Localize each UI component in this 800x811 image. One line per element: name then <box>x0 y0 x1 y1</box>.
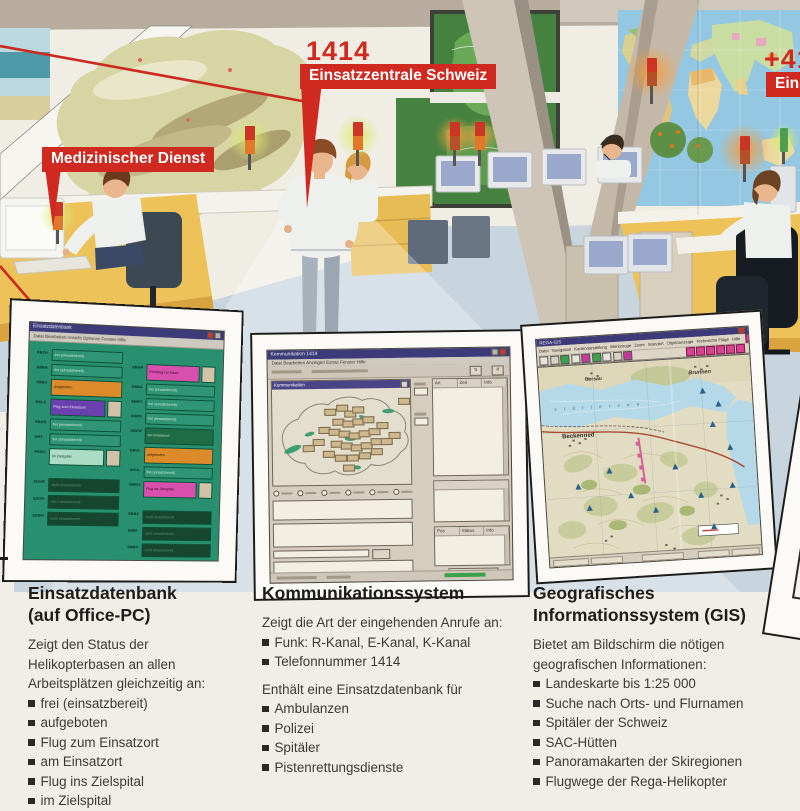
gis-menu-item: Standort <box>648 341 664 347</box>
db-status-board: EBZHfrei (einsatzbereit)EBBAfrei (einsat… <box>23 341 224 562</box>
comm-radio-option <box>345 489 364 495</box>
text-line: Bietet am Bildschirm die nötigen <box>533 635 793 655</box>
comm-field <box>414 387 428 395</box>
db-base-row: EBBGfrei (einsatzbereit) <box>131 412 215 426</box>
section-title: GeografischesInformationssystem (GIS) <box>533 582 793 626</box>
db-status-box: nicht einsatzbereit <box>47 512 119 527</box>
bullet-item: Panoramakarten der Skiregionen <box>533 752 793 772</box>
radio-channel-label <box>362 416 374 423</box>
bullet-text: Ambulanzen <box>275 699 349 719</box>
bullet-square-icon <box>28 798 35 805</box>
database-app-window: Einsatzdatenbank Datei Bearbeiten Ansich… <box>22 321 224 561</box>
db-status-box: frei (einsatzbereit) <box>50 418 122 432</box>
db-status-box: aufgeboten <box>144 447 213 465</box>
db-base-row: EBBAfrei (einsatzbereit) <box>132 383 216 398</box>
section-bullets: frei (einsatzbereit)aufgebotenFlug zum E… <box>28 694 254 811</box>
section-gis: GeografischesInformationssystem (GIS) Bi… <box>533 582 793 791</box>
comm-radio-option <box>369 489 388 495</box>
db-status-box: aufgeboten <box>51 379 123 398</box>
section-bullets: Funk: R-Kanal, E-Kanal, K-KanalTelefonnu… <box>262 633 520 672</box>
radio-channel-label <box>368 428 380 435</box>
db-base-code: EBBA <box>132 383 147 395</box>
comm-pos-list-headers: PosStatusInfo <box>435 526 509 536</box>
page-fold <box>697 0 699 215</box>
db-base-code: EBGL <box>130 446 145 463</box>
bullet-text: am Einsatzort <box>41 752 123 772</box>
db-base-code: EBBH <box>127 543 142 557</box>
comm-radio-option <box>393 489 412 495</box>
db-time-box <box>201 366 215 383</box>
radio-channel-label <box>324 409 336 416</box>
gis-number-button <box>726 344 736 354</box>
bullet-square-icon <box>262 659 269 666</box>
bullet-text: Spitäler der Schweiz <box>546 713 668 733</box>
text-line: Enthält eine Einsatzdatenbank für <box>262 680 520 700</box>
db-base-code: EBBX <box>36 378 51 395</box>
db-base-code: EBRH <box>129 481 144 498</box>
gis-tool-icon <box>571 354 581 364</box>
gis-number-button <box>686 347 696 357</box>
section-kommunikationssystem: Kommunikationssystem Zeigt die Art der e… <box>262 582 520 777</box>
db-base-code: EBZW <box>130 427 145 444</box>
db-status-box: Rückflug zur Basis <box>146 364 200 383</box>
comm-text-area <box>272 499 412 521</box>
callout-phone-1414: 1414 <box>306 36 370 67</box>
comm-radio-option <box>273 490 292 496</box>
bullet-square-icon <box>28 778 35 785</box>
db-status-box: nicht einsatzbereit <box>48 478 120 493</box>
db-status-box: nicht einsatzbereit <box>141 560 210 562</box>
db-base-code: EBBS <box>127 560 142 562</box>
bullet-square-icon <box>262 745 269 752</box>
bullet-square-icon <box>533 759 540 766</box>
bullet-square-icon <box>28 700 35 707</box>
db-base-code: EDBO <box>32 511 47 525</box>
text-line: Helikopterbasen an allen <box>28 655 254 675</box>
gis-menu-item: Technische Flüge <box>696 337 729 344</box>
db-status-box: nicht einsatzbereit <box>142 510 211 525</box>
callout-ops-center: Einsatzzentrale Schweiz <box>300 64 496 89</box>
section-bullets-2: AmbulanzenPolizeiSpitälerPistenrettungsd… <box>262 699 520 777</box>
section-intro-2: Enthält eine Einsatzdatenbank für <box>262 680 520 700</box>
helicopter-marker-icon <box>715 400 721 406</box>
bullet-square-icon <box>533 739 540 746</box>
helicopter-marker-icon <box>653 507 659 513</box>
gis-tool-icon <box>623 351 633 361</box>
db-base-row: EBLSFlug zum Einsatzort <box>35 398 122 418</box>
radio-channel-label <box>371 448 383 455</box>
comm-pos-list: PosStatusInfo <box>434 525 511 566</box>
comm-small-button <box>372 549 390 559</box>
bullet-square-icon <box>28 759 35 766</box>
comm-radio-option <box>297 490 316 496</box>
db-base-row: AGULfrei (einsatzbereit) <box>129 466 213 480</box>
text-line: geografischen Informationen: <box>533 655 793 675</box>
comm-tool-button: ⇅ <box>470 365 482 375</box>
topo-map-drawing: Gersau Brunnen Beckenried s t ä t t e r … <box>538 354 762 564</box>
db-status-box: frei (einsatzbereit) <box>49 433 121 447</box>
gis-menu-item: Hilfe <box>732 336 741 342</box>
db-status-box: nicht einsatzbereit <box>47 495 119 510</box>
section-title: Kommunikationssystem <box>262 582 520 604</box>
gis-menu-item: Objektanzeige <box>666 339 693 346</box>
db-base-row: EDBOnicht einsatzbereit <box>32 511 119 526</box>
gis-topo-map: Gersau Brunnen Beckenried s t ä t t e r … <box>538 354 762 565</box>
db-base-code: EBT <box>35 433 50 445</box>
screenshot-card-communication: Kommunikation 1414 Datei Bearbeiten Anze… <box>250 329 530 601</box>
db-base-row: EBBSnicht einsatzbereit <box>127 560 211 562</box>
gis-tool-icon <box>560 355 570 365</box>
text-line: Einsatzdatenbank <box>28 582 254 604</box>
db-base-code: EBLS <box>35 398 50 415</box>
db-base-code: EBBA <box>36 363 51 376</box>
gis-menu-item: Navigation <box>551 347 571 353</box>
bullet-text: Suche nach Orts- und Flurnamen <box>546 694 744 714</box>
bullet-square-icon <box>262 764 269 771</box>
gis-window-title: REGA-GIS <box>539 338 561 346</box>
comm-scrollbar <box>503 488 508 520</box>
text-line: Informationssystem (GIS) <box>533 604 793 626</box>
db-base-row: EBBHnicht einsatzbereit <box>127 543 211 557</box>
town-label-gersau: Gersau <box>584 376 602 383</box>
comm-scrollbar <box>504 534 509 564</box>
bullet-text: aufgeboten <box>41 713 108 733</box>
bullet-item: frei (einsatzbereit) <box>28 694 254 714</box>
radio-channel-label <box>343 464 355 471</box>
gis-menu-item: Werkzeuge <box>610 343 631 349</box>
bullet-square-icon <box>262 706 269 713</box>
bullet-square-icon <box>533 700 540 707</box>
helicopter-marker-icon <box>711 523 717 529</box>
bullet-square-icon <box>533 778 540 785</box>
gis-tool-icon <box>602 352 612 362</box>
gis-tool-icon <box>539 356 549 366</box>
helicopter-marker-icon <box>587 505 593 511</box>
bullet-item: Spitäler <box>262 738 520 758</box>
gis-number-button <box>716 345 726 355</box>
db-column-right: EBGRRückflug zur BasisEBBAfrei (einsatzb… <box>127 363 216 561</box>
gis-tool-icon <box>592 353 602 363</box>
bullet-text: Flugwege der Rega-Helikopter <box>546 772 728 792</box>
radio-channel-label <box>376 422 388 429</box>
comm-window-controls <box>491 348 506 355</box>
comm-statusbar <box>270 569 512 582</box>
db-base-row: EBGRRückflug zur Basis <box>132 363 216 383</box>
left-window <box>0 28 50 120</box>
bullet-item: Suche nach Orts- und Flurnamen <box>533 694 793 714</box>
gis-menu-item: Kartendarstellung <box>574 344 607 351</box>
bullet-text: Pistenrettungsdienste <box>275 758 404 778</box>
list-header-cell: Art <box>433 379 458 387</box>
db-base-row: EBBXaufgeboten <box>36 378 123 398</box>
db-base-code: FRAG <box>34 448 49 465</box>
db-base-code: EDGR <box>33 478 48 492</box>
bullet-item: Ambulanzen <box>262 699 520 719</box>
text-line: Arbeitsplätzen gleichzeitig an: <box>28 674 254 694</box>
list-header-cell: Status <box>460 527 485 535</box>
bullet-square-icon <box>28 720 35 727</box>
comm-scrollbar <box>502 386 508 474</box>
bullet-item: Flug ins Zielspital <box>28 772 254 792</box>
helicopter-marker-icon <box>672 463 678 469</box>
db-time-box <box>198 482 212 499</box>
bullet-text: Funk: R-Kanal, E-Kanal, K-Kanal <box>275 633 471 653</box>
gis-tool-icon <box>581 354 591 364</box>
db-status-box: Flug ins Zielspital <box>143 481 197 499</box>
section-bullets: Landeskarte bis 1:25 000Suche nach Orts-… <box>533 674 793 791</box>
text-line: Kommunikationssystem <box>262 582 520 604</box>
comm-call-list: ArtZeitInfo <box>432 377 509 476</box>
comm-tool-button: ⇵ <box>492 365 504 375</box>
bullet-text: Flug zum Einsatzort <box>41 733 159 753</box>
text-line: Geografisches <box>533 582 793 604</box>
bullet-item: Funk: R-Kanal, E-Kanal, K-Kanal <box>262 633 520 653</box>
helicopter-marker-icon <box>606 467 612 473</box>
bullet-item: Flugwege der Rega-Helikopter <box>533 772 793 792</box>
radio-channel-label <box>381 438 393 445</box>
db-status-box: nicht einsatzbereit <box>141 543 210 557</box>
bullet-text: SAC-Hütten <box>546 733 617 753</box>
radio-channel-label <box>303 445 315 452</box>
section-title: Einsatzdatenbank(auf Office-PC) <box>28 582 254 626</box>
radio-channel-label <box>389 432 401 439</box>
bullet-square-icon <box>262 639 269 646</box>
communication-app-window: Kommunikation 1414 Datei Bearbeiten Anze… <box>266 346 513 583</box>
gis-number-button: 2 <box>755 333 763 343</box>
helicopter-marker-icon <box>698 492 704 498</box>
screenshot-card-database: Einsatzdatenbank Datei Bearbeiten Ansich… <box>2 298 244 583</box>
db-column-left: EBZHfrei (einsatzbereit)EBBAfrei (einsat… <box>31 348 123 561</box>
bullet-text: Telefonnummer 1414 <box>275 652 401 672</box>
db-base-code: EBBI <box>128 527 143 541</box>
db-status-box: frei (einsatzbereit) <box>52 349 124 364</box>
section-einsatzdatenbank: Einsatzdatenbank(auf Office-PC) Zeigt de… <box>28 582 254 811</box>
db-window-controls <box>207 332 221 339</box>
screenshot-card-gis: REGA-GIS DateiNavigationKartendarstellun… <box>520 310 778 585</box>
gis-app-window: REGA-GIS DateiNavigationKartendarstellun… <box>535 326 763 569</box>
bullet-item: SAC-Hütten <box>533 733 793 753</box>
bullet-square-icon <box>533 720 540 727</box>
helicopter-marker-icon <box>727 444 733 450</box>
comm-field <box>414 417 428 425</box>
radio-channel-label <box>359 452 371 459</box>
bullet-square-icon <box>28 739 35 746</box>
db-base-row: EBGLaufgeboten <box>130 446 214 465</box>
gis-tool-icon <box>550 355 560 365</box>
helicopter-marker-icon <box>628 492 634 498</box>
bullet-square-icon <box>262 725 269 732</box>
callout-intl-label: Eins <box>766 72 800 97</box>
db-base-row: EBZWam Einsatzort <box>130 427 214 446</box>
radio-channel-label <box>323 451 335 458</box>
comm-mid-list <box>433 479 510 522</box>
bullet-item: Flug zum Einsatzort <box>28 733 254 753</box>
bullet-text: Flug ins Zielspital <box>41 772 144 792</box>
bullet-text: frei (einsatzbereit) <box>41 694 148 714</box>
db-base-row: EBBZnicht einsatzbereit <box>128 510 212 525</box>
text-line: Zeigt den Status der <box>28 635 254 655</box>
text-line: Zeigt die Art der eingehenden Anrufe an: <box>262 613 520 633</box>
db-status-box: frei (einsatzbereit) <box>145 413 214 427</box>
list-header-cell: Pos <box>435 527 460 535</box>
bullet-text: Polizei <box>275 719 314 739</box>
db-base-row: EBTfrei (einsatzbereit) <box>35 433 121 447</box>
town-label-beckenried: Beckenried <box>562 432 595 440</box>
radio-channel-label <box>335 455 347 462</box>
radio-channel-label <box>398 398 410 405</box>
radio-channel-label <box>347 454 359 461</box>
text-line: (auf Office-PC) <box>28 604 254 626</box>
db-status-box: frei (einsatzbereit) <box>144 466 213 479</box>
db-base-code: EBBZ <box>128 510 143 524</box>
db-status-box: frei (einsatzbereit) <box>145 398 214 412</box>
gis-number-button <box>736 344 746 354</box>
db-base-row: FRAGim Zielspital <box>34 448 121 467</box>
db-base-code: EBGR <box>35 418 50 430</box>
db-base-row: EBBOfrei (einsatzbereit) <box>131 398 215 413</box>
comm-combo <box>273 549 369 558</box>
bullet-item: Landeskarte bis 1:25 000 <box>533 674 793 694</box>
brochure-page: Medizinischer Dienst 1414 Einsatzzentral… <box>0 0 800 811</box>
db-base-row: EBBAfrei (einsatzbereit) <box>36 363 122 378</box>
db-base-code: EBZH <box>37 348 52 361</box>
db-base-code: EBGR <box>132 363 147 380</box>
bullet-square-icon <box>533 681 540 688</box>
bullet-text: im Zielspital <box>41 791 112 811</box>
gis-number-button <box>696 346 706 356</box>
db-base-row: EBZHfrei (einsatzbereit) <box>37 348 123 364</box>
crop-mark <box>0 557 8 560</box>
db-base-row: EBGRfrei (einsatzbereit) <box>35 418 121 433</box>
section-intro: Zeigt den Status derHelikopterbasen an a… <box>28 635 254 694</box>
db-base-row: EBRHFlug ins Zielspital <box>129 481 213 499</box>
comm-text-area <box>273 522 413 548</box>
bullet-item: am Einsatzort <box>28 752 254 772</box>
callout-intl-number: +41 <box>764 44 800 75</box>
bullet-item: Polizei <box>262 719 520 739</box>
db-base-code: EDUN <box>33 495 48 509</box>
bullet-item: Pistenrettungsdienste <box>262 758 520 778</box>
comm-radio-option <box>321 490 340 496</box>
bullet-text: Panoramakarten der Skiregionen <box>546 752 743 772</box>
helicopter-marker-icon <box>575 483 581 489</box>
gis-number-button: 1 <box>745 333 755 343</box>
db-base-code: EBBO <box>131 398 146 410</box>
gis-number-button <box>706 346 716 356</box>
db-base-row: EDUNnicht einsatzbereit <box>33 495 120 510</box>
bullet-item: Spitäler der Schweiz <box>533 713 793 733</box>
db-base-row: EBBInicht einsatzbereit <box>128 527 212 542</box>
radio-channel-label <box>352 406 364 413</box>
db-base-code: AGUL <box>129 466 144 478</box>
db-status-box: frei (einsatzbereit) <box>51 364 123 379</box>
section-intro: Zeigt die Art der eingehenden Anrufe an: <box>262 613 520 633</box>
bullet-item: Telefonnummer 1414 <box>262 652 520 672</box>
gis-menu-item: Zoom <box>634 342 645 348</box>
section-intro: Bietet am Bildschirm die nötigengeografi… <box>533 635 793 674</box>
gis-menu-item: Datei <box>539 348 549 354</box>
helicopter-marker-icon <box>729 482 735 488</box>
gis-tool-icon <box>612 352 622 362</box>
db-base-row: EDGRnicht einsatzbereit <box>33 478 120 494</box>
db-status-box: Flug zum Einsatzort <box>50 399 106 418</box>
comm-map-body <box>272 388 411 486</box>
bullet-text: Landeskarte bis 1:25 000 <box>546 674 696 694</box>
db-status-box: am Einsatzort <box>144 427 213 446</box>
callout-medical-service: Medizinischer Dienst <box>42 147 214 172</box>
db-status-box: im Zielspital <box>49 448 105 466</box>
comm-map-window: Kommunikation <box>271 379 412 487</box>
db-status-box: nicht einsatzbereit <box>142 527 211 541</box>
bullet-item: aufgeboten <box>28 713 254 733</box>
helicopter-marker-icon <box>709 421 715 427</box>
radio-channel-labels <box>273 489 411 491</box>
bullet-item: im Zielspital <box>28 791 254 811</box>
bullet-text: Spitäler <box>275 738 320 758</box>
db-status-box: frei (einsatzbereit) <box>146 383 215 397</box>
helicopter-marker-icon <box>699 387 705 393</box>
comm-call-list-headers: ArtZeitInfo <box>433 378 507 388</box>
db-base-code: EBBG <box>131 412 146 424</box>
list-header-cell: Zeit <box>457 379 482 387</box>
db-time-box <box>107 401 122 418</box>
db-time-box <box>106 450 121 467</box>
